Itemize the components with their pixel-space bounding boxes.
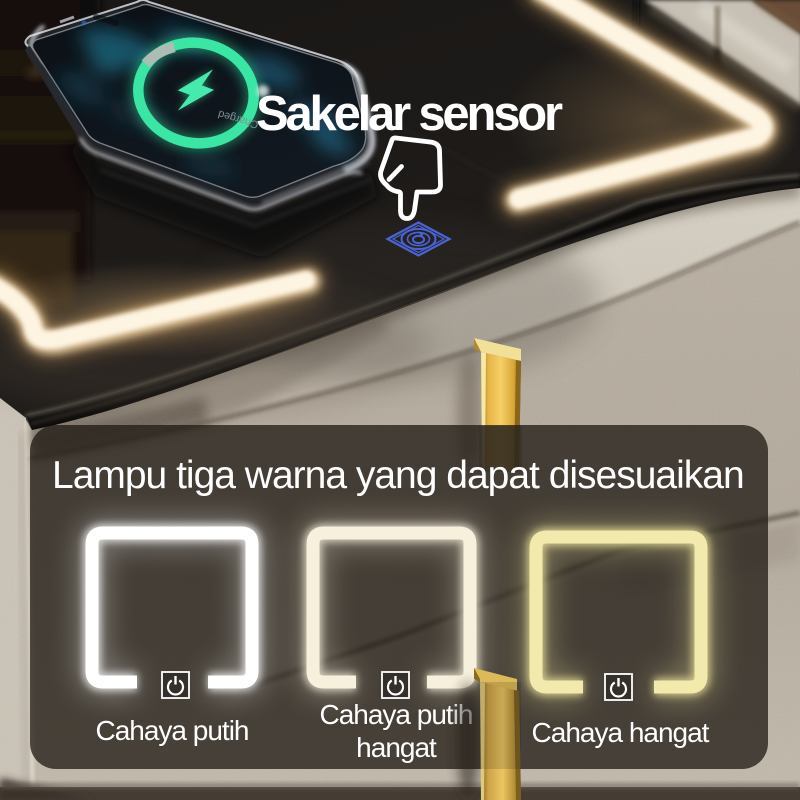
svg-text:Lampu tiga warna yang dapat di: Lampu tiga warna yang dapat disesuaikan (52, 454, 744, 497)
svg-text:Cahaya putih: Cahaya putih (319, 699, 472, 730)
svg-text:Sakelar sensor: Sakelar sensor (256, 87, 563, 141)
svg-text:hangat: hangat (356, 732, 437, 763)
svg-text:Cahaya putih: Cahaya putih (95, 715, 248, 746)
svg-text:Cahaya hangat: Cahaya hangat (532, 717, 710, 748)
